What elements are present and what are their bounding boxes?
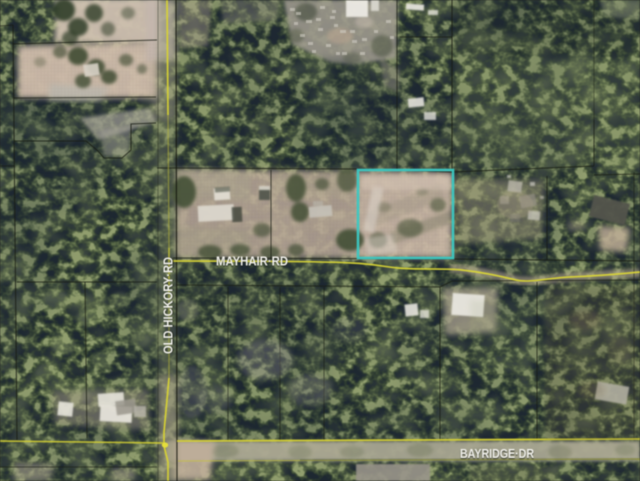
svg-text:OLD HICKORY·RD: OLD HICKORY·RD xyxy=(161,257,176,354)
svg-text:BAYRIDGE·DR: BAYRIDGE·DR xyxy=(460,446,534,461)
svg-text:MAYHAIR·RD: MAYHAIR·RD xyxy=(216,254,288,269)
